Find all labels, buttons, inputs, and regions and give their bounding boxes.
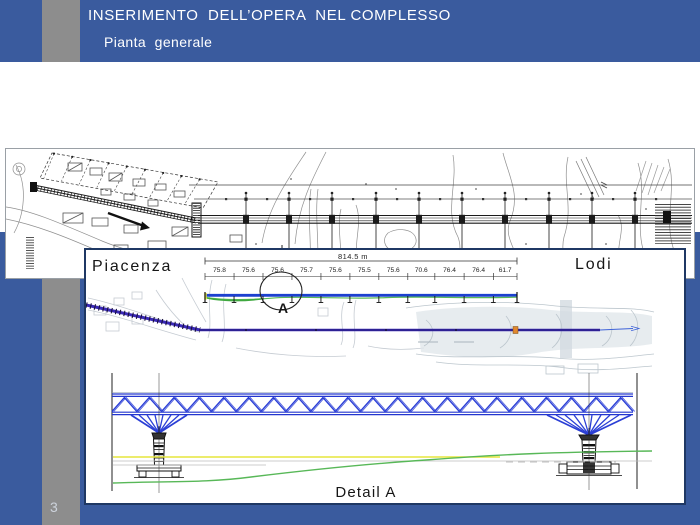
- svg-text:75.8: 75.8: [213, 267, 226, 274]
- left-pier: [134, 373, 184, 493]
- svg-text:76.4: 76.4: [443, 267, 456, 274]
- slide-title: INSERIMENTO DELL’OPERA NEL COMPLESSO: [88, 7, 451, 24]
- flow-arrow: [108, 213, 150, 231]
- slide: INSERIMENTO DELL’OPERA NEL COMPLESSO Pia…: [0, 0, 700, 525]
- svg-text:70.6: 70.6: [415, 267, 428, 274]
- svg-text:75.6: 75.6: [242, 267, 255, 274]
- abutment-right: [663, 204, 673, 244]
- elevation-drawing: 75.875.675.675.775.675.575.670.676.476.4…: [86, 250, 684, 503]
- page-number: 3: [50, 499, 58, 515]
- detail-a-drawing: [112, 373, 652, 493]
- slide-subtitle: Pianta generale: [104, 34, 212, 50]
- total-length-label: 814.5 m: [338, 252, 368, 261]
- bridge-deck-plan: [198, 216, 692, 224]
- svg-text:75.6: 75.6: [387, 267, 400, 274]
- abutment-marker: [513, 327, 518, 334]
- buildings: [63, 163, 242, 253]
- right-city-label: Lodi: [575, 256, 612, 273]
- detail-marker-label: A: [278, 300, 288, 316]
- faint-map-right: [406, 300, 654, 374]
- detail-caption: Detail A: [335, 484, 396, 501]
- elevation-panel: 75.875.675.675.775.675.575.670.676.476.4…: [84, 248, 686, 505]
- svg-text:61.7: 61.7: [499, 267, 512, 274]
- svg-text:75.6: 75.6: [329, 267, 342, 274]
- svg-text:75.5: 75.5: [358, 267, 371, 274]
- approach-viaduct: [30, 182, 196, 223]
- top-drawing-strip: [0, 62, 700, 232]
- right-pier: [556, 373, 622, 490]
- svg-text:75.7: 75.7: [300, 267, 313, 274]
- left-city-label: Piacenza: [92, 258, 172, 275]
- abutment-left: [192, 203, 201, 237]
- bridge-elevation-line: [205, 293, 517, 301]
- truss-diagonals: [112, 398, 635, 412]
- svg-text:76.4: 76.4: [472, 267, 485, 274]
- levee-lines: [189, 182, 692, 199]
